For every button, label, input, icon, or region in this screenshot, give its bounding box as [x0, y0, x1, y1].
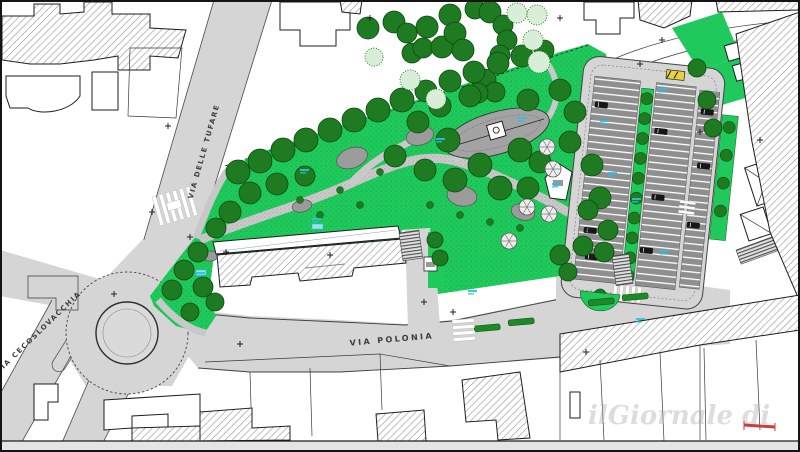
- tree-icon: [193, 277, 213, 297]
- dimension-mark: [436, 138, 445, 140]
- dimension-mark: [632, 201, 638, 203]
- dimension-mark: [608, 175, 614, 177]
- dimension-mark: [468, 290, 477, 292]
- site-plan-page: VIA DELLE TUFARE VIA CECOSLOVACCHIA VIA …: [0, 0, 800, 452]
- dimension-mark: [196, 275, 202, 277]
- water-feature: [312, 224, 323, 229]
- tree-icon: [206, 293, 224, 311]
- dimension-mark: [600, 123, 606, 125]
- building-outline: [570, 392, 580, 418]
- sketch-tree-icon: [507, 3, 527, 23]
- dimension-mark: [196, 272, 205, 274]
- dimension-mark: [658, 88, 667, 90]
- tree-icon: [414, 159, 436, 181]
- tree-icon: [578, 200, 598, 220]
- sketch-tree-icon: [400, 70, 420, 90]
- site-plan-map: VIA DELLE TUFARE VIA CECOSLOVACCHIA VIA …: [0, 0, 800, 452]
- tree-icon: [463, 61, 485, 83]
- tree-icon: [688, 59, 706, 77]
- sketch-tree-icon: [523, 30, 543, 50]
- tree-icon: [594, 242, 614, 262]
- dimension-mark: [468, 293, 474, 295]
- building-block: [340, 0, 362, 14]
- tree-icon: [517, 177, 539, 199]
- sketch-tree-icon: [426, 89, 446, 109]
- tree-icon: [248, 149, 272, 173]
- tree-icon: [366, 98, 390, 122]
- dimension-mark: [436, 141, 442, 143]
- bush-icon: [427, 202, 434, 209]
- tree-icon: [416, 16, 438, 38]
- tree-icon: [559, 263, 577, 281]
- sketch-tree-icon: [365, 48, 383, 66]
- tree-icon: [564, 101, 586, 123]
- bush-icon: [457, 212, 464, 219]
- bush-icon: [317, 212, 324, 219]
- tree-icon: [427, 232, 443, 248]
- tree-icon: [459, 85, 481, 107]
- dimension-mark: [658, 91, 664, 93]
- building-block: [132, 426, 200, 441]
- dimension-mark: [552, 183, 561, 185]
- bush-icon: [517, 225, 524, 232]
- tree-icon: [181, 303, 199, 321]
- tree-icon: [468, 153, 492, 177]
- sketch-tree-icon: [527, 5, 547, 25]
- dimension-mark: [518, 117, 527, 119]
- crosswalk: [678, 200, 696, 215]
- tree-icon: [487, 52, 509, 74]
- bush-icon: [487, 219, 494, 226]
- tree-icon: [698, 91, 716, 109]
- tree-icon: [508, 138, 532, 162]
- dimension-mark: [600, 120, 609, 122]
- tree-icon: [443, 168, 467, 192]
- tree-icon: [342, 108, 366, 132]
- bush-icon: [357, 202, 364, 209]
- tree-icon: [390, 88, 414, 112]
- tree-icon: [432, 250, 448, 266]
- tree-icon: [271, 138, 295, 162]
- dimension-mark: [608, 172, 617, 174]
- dimension-mark: [300, 169, 309, 171]
- tree-icon: [550, 245, 570, 265]
- tree-icon: [517, 89, 539, 111]
- dimension-mark: [300, 172, 306, 174]
- tree-icon: [559, 131, 581, 153]
- tree-icon: [573, 236, 593, 256]
- bush-icon: [337, 187, 344, 194]
- dimension-mark: [632, 198, 641, 200]
- tree-icon: [266, 173, 288, 195]
- tree-icon: [162, 280, 182, 300]
- tree-icon: [239, 182, 261, 204]
- tree-icon: [581, 154, 603, 176]
- tree-icon: [598, 220, 618, 240]
- tree-icon: [174, 260, 194, 280]
- tree-icon: [318, 118, 342, 142]
- dimension-mark: [660, 253, 666, 255]
- tree-icon: [452, 39, 474, 61]
- tree-icon: [413, 38, 433, 58]
- tree-icon: [407, 111, 429, 133]
- dimension-mark: [312, 218, 321, 220]
- bush-icon: [297, 197, 304, 204]
- bush-icon: [377, 169, 384, 176]
- dimension-mark: [660, 250, 669, 252]
- sketch-tree-icon: [528, 51, 550, 73]
- tree-icon: [206, 218, 226, 238]
- dimension-mark: [518, 120, 524, 122]
- tree-icon: [219, 201, 241, 223]
- building-block: [376, 410, 426, 441]
- dimension-mark: [552, 186, 558, 188]
- dimension-mark: [636, 318, 645, 320]
- watermark: ilGiornale di: [588, 401, 770, 431]
- tree-icon: [439, 70, 461, 92]
- stairs: [399, 230, 423, 261]
- building-outline: [92, 72, 118, 110]
- tree-icon: [188, 242, 208, 262]
- tree-icon: [384, 145, 406, 167]
- tree-icon: [704, 119, 722, 137]
- dimension-mark: [636, 321, 642, 323]
- tree-icon: [549, 79, 571, 101]
- dimension-mark: [312, 221, 318, 223]
- building-outline: [6, 76, 80, 112]
- tree-icon: [226, 160, 250, 184]
- tree-icon: [488, 176, 512, 200]
- tree-icon: [294, 128, 318, 152]
- tree-icon: [357, 17, 379, 39]
- tree-icon: [397, 23, 417, 43]
